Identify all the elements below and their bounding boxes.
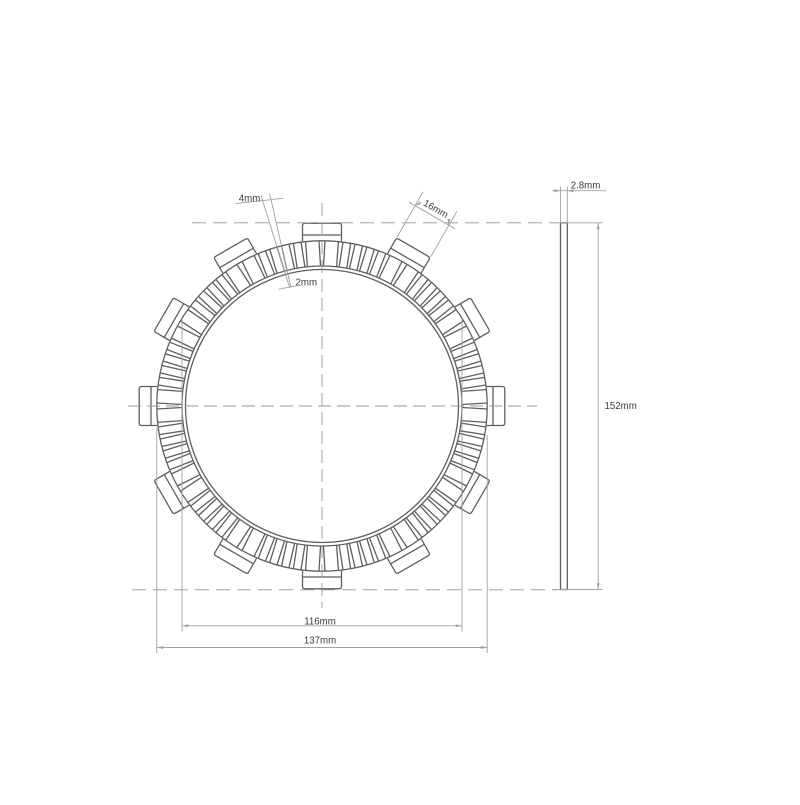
svg-text:137mm: 137mm [304, 635, 336, 646]
svg-text:2.8mm: 2.8mm [571, 180, 601, 191]
svg-text:4mm: 4mm [239, 194, 261, 205]
svg-text:116mm: 116mm [304, 616, 336, 627]
svg-text:152mm: 152mm [605, 401, 637, 412]
svg-text:2mm: 2mm [296, 278, 318, 289]
